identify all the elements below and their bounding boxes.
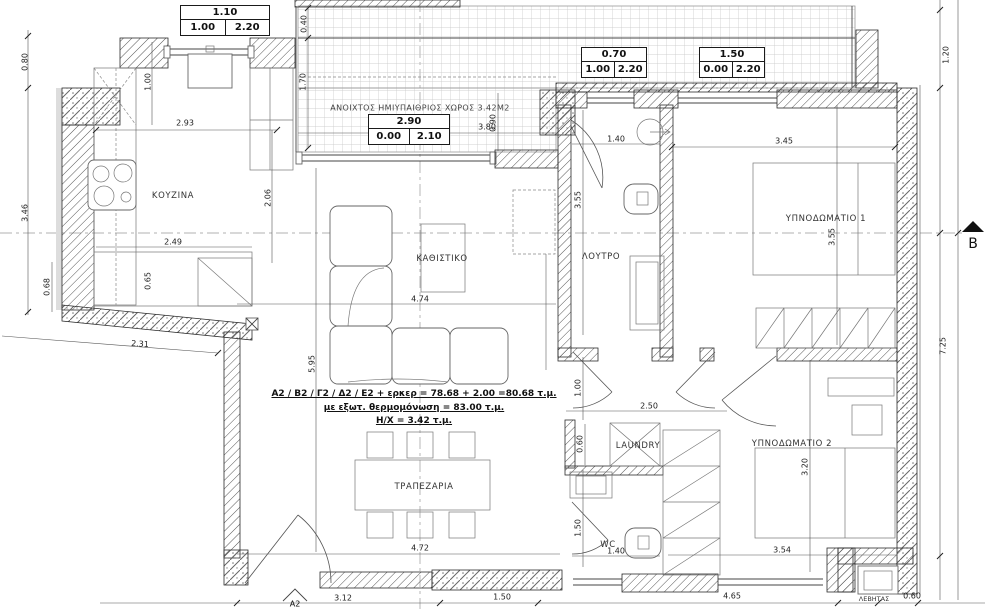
- doors: [245, 120, 776, 583]
- dim-label: 1.40: [607, 547, 625, 556]
- opening-width: 1.10: [181, 6, 269, 20]
- dim-label: 2.06: [264, 189, 273, 207]
- dim-label: 4.72: [411, 544, 429, 553]
- dim-label: 1.40: [607, 135, 625, 144]
- dim-label: 2.31: [131, 339, 149, 349]
- floor-plan-canvas: [0, 0, 1000, 609]
- room-label-dining: ΤΡΑΠΕΖΑΡΙΑ: [395, 482, 454, 492]
- dim-label: 4.74: [411, 295, 429, 304]
- dim-label: 0.40: [300, 15, 309, 33]
- dim-label: 0.65: [144, 272, 153, 290]
- dim-label: 3.54: [773, 546, 791, 555]
- kitchen-sink: [188, 54, 232, 88]
- section-marker-label: B: [968, 236, 978, 252]
- dim-label: 1.20: [942, 46, 951, 64]
- opening-width: 0.70: [582, 48, 646, 62]
- dim-label: 3.55: [828, 228, 837, 246]
- dim-label: 3.20: [801, 458, 810, 476]
- dim-label: 1.70: [299, 73, 308, 91]
- sill-height: 1.00: [582, 62, 615, 77]
- dim-label: 1.50: [574, 519, 583, 537]
- dim-label: 1.00: [574, 379, 583, 397]
- lintel-height: 2.20: [615, 62, 647, 77]
- dim-label: 0.80: [21, 53, 30, 71]
- room-label-bed2: ΥΠΝΟΔΩΜΑΤΙΟ 2: [752, 439, 832, 449]
- opening-dim-box-2: 2.90 0.00 2.10: [368, 114, 450, 145]
- dim-label: 0.90: [489, 114, 498, 132]
- dim-label: 0.60: [576, 435, 585, 453]
- node-marker-label: A2: [290, 600, 301, 609]
- dim-label: 3.45: [775, 137, 793, 146]
- dim-label: 4.65: [723, 592, 741, 601]
- pergola-label: ΑΝΟΙΧΤΟΣ ΗΜΙΥΠΑΙΘΡΙΟΣ ΧΩΡΟΣ 3.42Μ2: [330, 104, 509, 113]
- dim-label: 3.55: [574, 191, 583, 209]
- kitchen-bench: [94, 252, 252, 306]
- dim-label: 1.00: [144, 73, 153, 91]
- opening-width: 1.50: [700, 48, 764, 62]
- floor-plan: 1.10 1.00 2.20 2.90 0.00 2.10 0.70 1.00 …: [0, 0, 1000, 609]
- bed-2: [755, 448, 895, 538]
- lintel-height: 2.20: [226, 20, 270, 35]
- opening-width: 2.90: [369, 115, 449, 129]
- bath-toilet: [624, 184, 658, 214]
- room-label-bed1: ΥΠΝΟΔΩΜΑΤΙΟ 1: [786, 214, 866, 224]
- room-label-bath: ΛΟΥΤΡΟ: [582, 252, 620, 262]
- section-marker-triangle: [962, 221, 984, 232]
- lintel-height: 2.20: [733, 62, 765, 77]
- dim-label: 3.12: [334, 594, 352, 603]
- room-label-kitchen: ΚΟΥΖΙΝΑ: [152, 191, 194, 201]
- wardrobe-2: [663, 430, 720, 575]
- sill-height: 0.00: [700, 62, 733, 77]
- opening-dim-box-4: 1.50 0.00 2.20: [699, 47, 765, 78]
- roof-edge-hatch: [295, 0, 460, 7]
- wardrobe-1: [756, 308, 895, 348]
- dim-label: 7.25: [939, 337, 948, 355]
- area-line-3: Η/Χ = 3.42 τ.μ.: [258, 415, 570, 429]
- area-line-1: Α2 / Β2 / Γ2 / Δ2 / Ε2 + ερκερ = 78.68 +…: [258, 388, 570, 402]
- dim-label: 1.50: [493, 593, 511, 602]
- tv-unit: [513, 190, 555, 254]
- opening-dim-box-1: 1.10 1.00 2.20: [180, 5, 270, 36]
- dim-label: 2.93: [176, 119, 194, 128]
- dim-label: 2.49: [164, 238, 182, 247]
- lintel-height: 2.10: [410, 129, 450, 144]
- shelf: [828, 378, 894, 396]
- opening-dim-box-3: 0.70 1.00 2.20: [581, 47, 647, 78]
- room-label-living: ΚΑΘΙΣΤΙΚΟ: [416, 254, 467, 264]
- sill-height: 0.00: [369, 129, 410, 144]
- dim-label: 3.46: [21, 204, 30, 222]
- dim-label: 5.95: [308, 355, 317, 373]
- room-label-laundry: LAUNDRY: [616, 441, 661, 451]
- wc-toilet: [625, 528, 661, 558]
- bath-shower: [630, 256, 664, 330]
- sill-height: 1.00: [181, 20, 226, 35]
- room-label-boiler: ΛΕΒΗΤΑΣ: [859, 595, 889, 603]
- dim-label: 0.60: [903, 592, 921, 601]
- area-line-2: με εξωτ. θερμομόνωση = 83.00 τ.μ.: [258, 402, 570, 416]
- nightstand: [852, 405, 882, 435]
- dim-label: 0.68: [43, 278, 52, 296]
- kitchen-cabinet: [250, 68, 293, 170]
- area-annotation: Α2 / Β2 / Γ2 / Δ2 / Ε2 + ερκερ = 78.68 +…: [258, 388, 570, 429]
- dim-label: 2.50: [640, 402, 658, 411]
